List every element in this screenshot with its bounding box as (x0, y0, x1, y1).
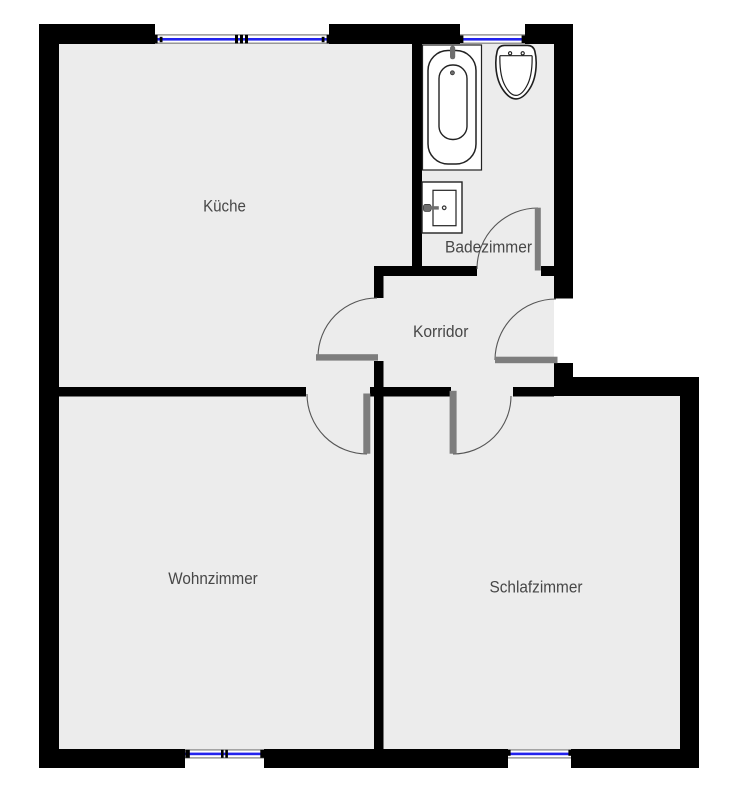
svg-text:Küche: Küche (203, 197, 246, 216)
svg-text:Korridor: Korridor (413, 322, 469, 341)
svg-text:Wohnzimmer: Wohnzimmer (168, 569, 258, 588)
svg-text:Schlafzimmer: Schlafzimmer (490, 578, 583, 597)
svg-text:Badezimmer: Badezimmer (445, 238, 532, 257)
